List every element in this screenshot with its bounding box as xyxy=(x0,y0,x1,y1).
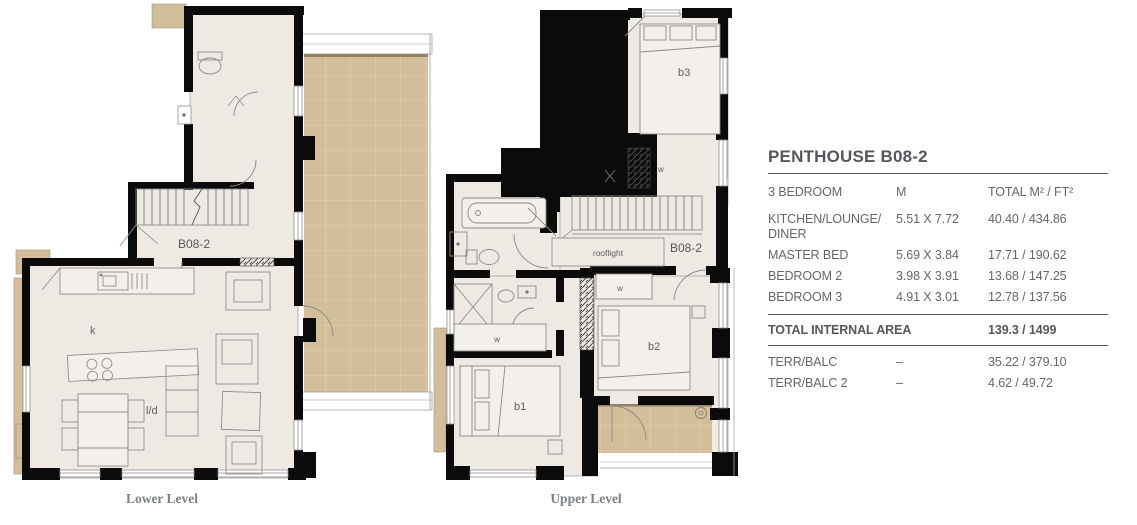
lower-unit-label: B08-2 xyxy=(178,237,210,251)
room-area: 13.68 / 147.25 xyxy=(988,269,1108,284)
col-header-rooms: 3 BEDROOM xyxy=(768,185,896,200)
lower-level-plan: k l/d B08-2 Lower Level xyxy=(14,4,432,506)
room-name: MASTER BED xyxy=(768,248,896,263)
floorplan-sheet: k l/d B08-2 Lower Level xyxy=(0,0,1137,525)
table-header-row: 3 BEDROOM M TOTAL M² / FT² xyxy=(768,182,1108,203)
table-row: MASTER BED 5.69 X 3.84 17.71 / 190.62 xyxy=(768,245,1108,266)
panel-title: PENTHOUSE B08-2 xyxy=(768,147,1108,167)
room-area: 12.78 / 137.56 xyxy=(988,290,1108,305)
lower-lounge-label: l/d xyxy=(146,405,158,417)
terrace-rows: TERR/BALC – 35.22 / 379.10 TERR/BALC 2 –… xyxy=(768,352,1108,394)
terrace-name: TERR/BALC xyxy=(768,355,896,370)
lower-floor xyxy=(25,12,298,478)
rooflight-box: rooflight xyxy=(552,238,664,266)
terrace-dimensions: – xyxy=(896,376,988,391)
lower-level-caption: Lower Level xyxy=(126,491,198,506)
room-name: BEDROOM 3 xyxy=(768,290,896,305)
bedroom-3-label: b3 xyxy=(678,67,690,79)
terrace-area: 4.62 / 49.72 xyxy=(988,376,1108,391)
floorplans-canvas: k l/d B08-2 Lower Level xyxy=(0,0,760,525)
table-row: BEDROOM 2 3.98 X 3.91 13.68 / 147.25 xyxy=(768,266,1108,287)
upper-level-caption: Upper Level xyxy=(550,491,622,506)
lower-hatched-wall xyxy=(240,258,274,266)
table-row: TERR/BALC – 35.22 / 379.10 xyxy=(768,352,1108,373)
room-area: 40.40 / 434.86 xyxy=(988,212,1108,227)
room-dimensions: 5.51 X 7.72 xyxy=(896,212,988,227)
table-row: TERR/BALC 2 – 4.62 / 49.72 xyxy=(768,373,1108,394)
terrace-area: 35.22 / 379.10 xyxy=(988,355,1108,370)
title-rule xyxy=(768,173,1108,174)
room-dimensions: 4.91 X 3.01 xyxy=(896,290,988,305)
room-name: BEDROOM 2 xyxy=(768,269,896,284)
upper-unit-label: B08-2 xyxy=(670,241,702,255)
lower-kitchen-label: k xyxy=(90,325,96,337)
unit-spec-panel: PENTHOUSE B08-2 3 BEDROOM M TOTAL M² / F… xyxy=(768,147,1108,394)
total-value: 139.3 / 1499 xyxy=(988,323,1108,337)
terrace-name: TERR/BALC 2 xyxy=(768,376,896,391)
total-internal-area-row: TOTAL INTERNAL AREA 139.3 / 1499 xyxy=(768,315,1108,345)
lower-terrace xyxy=(302,34,432,410)
col-header-m: M xyxy=(896,185,988,200)
rooflight-label: rooflight xyxy=(593,248,624,258)
room-area: 17.71 / 190.62 xyxy=(988,248,1108,263)
terrace-dimensions: – xyxy=(896,355,988,370)
table-row: BEDROOM 3 4.91 X 3.01 12.78 / 137.56 xyxy=(768,287,1108,308)
wardrobe-hall-label: w xyxy=(657,165,664,174)
wardrobe-b1: w xyxy=(454,324,546,351)
col-header-total: TOTAL M² / FT² xyxy=(988,185,1108,200)
table-row: KITCHEN/LOUNGE/ DINER 5.51 X 7.72 40.40 … xyxy=(768,209,1108,245)
wardrobe-b2-label: w xyxy=(616,284,623,293)
room-dimensions: 3.98 X 3.91 xyxy=(896,269,988,284)
total-rule-bottom xyxy=(768,345,1108,346)
wardrobe-b1-label: w xyxy=(493,335,500,344)
bedroom-1-label: b1 xyxy=(514,401,526,413)
total-label: TOTAL INTERNAL AREA xyxy=(768,323,988,337)
bedroom-2-label: b2 xyxy=(648,341,660,353)
room-dimensions: 5.69 X 3.84 xyxy=(896,248,988,263)
upper-level-plan: rooflight w xyxy=(434,8,738,506)
room-name: KITCHEN/LOUNGE/ DINER xyxy=(768,212,896,242)
upper-adjacent-balcony xyxy=(434,328,446,452)
